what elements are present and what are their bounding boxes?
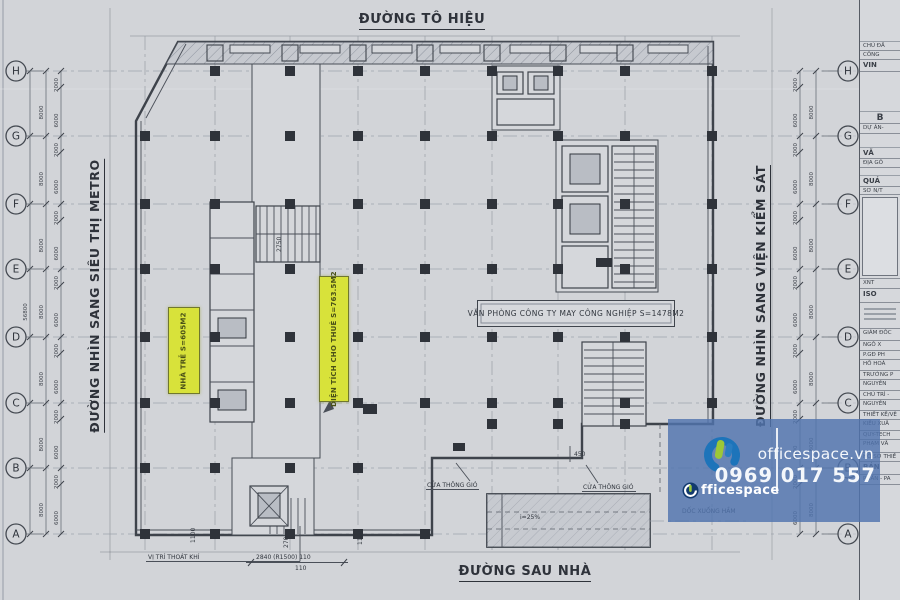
dimension-text: 6000 — [793, 113, 799, 127]
column-marker — [707, 66, 717, 76]
dim-2840: 2840 (R1500) 110 — [256, 554, 311, 561]
column-marker — [140, 529, 150, 539]
column-marker — [140, 264, 150, 274]
dimension-text: 6000 — [54, 445, 60, 459]
column-marker — [420, 529, 430, 539]
dimension-text: 8000 — [809, 238, 815, 252]
dimension-text: 2000 — [793, 78, 799, 92]
column-marker — [210, 264, 220, 274]
grid-bubble-label: A — [844, 529, 852, 541]
column-marker — [420, 131, 430, 141]
grid-bubble-label: E — [13, 264, 20, 276]
title-block-row: TRƯỞNG P — [860, 371, 900, 380]
dimension-text: 2000 — [54, 276, 60, 290]
column-marker — [553, 131, 563, 141]
stair-bottom-left — [232, 458, 314, 535]
grid-bubble-label: C — [12, 398, 19, 410]
dimension-text: 2000 — [54, 143, 60, 157]
title-block-row: NGUYỄN — [860, 380, 900, 391]
column-marker — [620, 131, 630, 141]
chamfer-inner-line — [146, 44, 186, 118]
dimension-text: 8000 — [809, 372, 815, 386]
title-block-row: ĐỊA GỐ — [860, 159, 900, 168]
column-marker — [140, 398, 150, 408]
column-marker — [350, 45, 366, 61]
column-marker — [707, 264, 717, 274]
column-marker — [420, 264, 430, 274]
dimension-text: 8000 — [39, 238, 45, 252]
column-marker — [140, 131, 150, 141]
grid-bubble-label: A — [12, 529, 20, 541]
column-marker — [487, 419, 497, 429]
watermark-brand-text: fficespace — [701, 483, 780, 498]
column-marker — [210, 66, 220, 76]
column-marker — [353, 463, 363, 473]
dimension-text: 6000 — [54, 313, 60, 327]
column-marker — [620, 66, 630, 76]
dimension-text: 2000 — [793, 143, 799, 157]
dimension-text: 8000 — [39, 105, 45, 119]
title-block-row: QUẢ — [860, 176, 900, 187]
column-marker — [420, 332, 430, 342]
dimension-text: 2000 — [793, 344, 799, 358]
title-block-row: CHỦ TRÌ - — [860, 391, 900, 400]
column-marker — [553, 332, 563, 342]
column-marker — [210, 529, 220, 539]
column-marker — [353, 199, 363, 209]
column-marker — [207, 45, 223, 61]
office-area-label-text: VĂN PHÒNG CÔNG TY MAY CÔNG NGHIỆP S=1478… — [468, 309, 685, 318]
dimension-text: 2000 — [793, 211, 799, 225]
column-marker — [285, 332, 295, 342]
highlight-rental-label: DIỆN TÍCH CHO THUÊ S=763.5M2 — [319, 276, 349, 402]
street-label-top-text: ĐƯỜNG TÔ HIỆU — [359, 12, 486, 30]
dim-1100-a: 1100 — [190, 528, 197, 543]
title-block-spacer — [860, 72, 900, 112]
core-right — [556, 140, 658, 292]
column-marker — [285, 398, 295, 408]
watermark-brand: fficespace — [682, 482, 780, 499]
column-marker — [420, 398, 430, 408]
title-block-row: XNT — [860, 279, 900, 289]
column-marker — [282, 45, 298, 61]
column-marker — [487, 332, 497, 342]
column-marker — [353, 264, 363, 274]
title-block-spacer — [860, 168, 900, 176]
column-marker — [285, 199, 295, 209]
column-marker — [353, 66, 363, 76]
title-block-box — [860, 195, 900, 279]
column-marker — [487, 398, 497, 408]
column-marker — [487, 131, 497, 141]
column-marker — [210, 398, 220, 408]
column-marker — [210, 463, 220, 473]
grid-bubble-label: H — [844, 66, 852, 78]
column-marker — [620, 199, 630, 209]
dimension-text: 2000 — [54, 475, 60, 489]
grid-bubble-label: E — [845, 264, 852, 276]
dimension-text: 2000 — [54, 410, 60, 424]
dimension-text: 8000 — [809, 172, 815, 186]
nursery-label-text: NHÀ TRẺ S=605M2 — [180, 312, 188, 389]
core-left — [210, 64, 320, 458]
column-marker — [420, 66, 430, 76]
dimension-text: 8000 — [809, 305, 815, 319]
column-marker — [553, 199, 563, 209]
title-block-row: VĂ — [860, 148, 900, 159]
title-block-row: CÔNG — [860, 51, 900, 60]
dimension-text: 6000 — [793, 380, 799, 394]
column-marker — [553, 398, 563, 408]
column-marker — [553, 66, 563, 76]
dim-2750: 2750 — [276, 237, 283, 252]
column-marker — [210, 199, 220, 209]
column-marker — [553, 419, 563, 429]
dimension-text: 2000 — [54, 344, 60, 358]
column-marker — [487, 199, 497, 209]
grid-bubble-label: H — [12, 66, 20, 78]
title-block-spacer — [860, 0, 900, 42]
column-marker — [353, 332, 363, 342]
column-marker — [353, 131, 363, 141]
dimension-text: 8000 — [39, 503, 45, 517]
street-label-left-text: ĐƯỜNG NHÌN SANG SIÊU THỊ METRO — [87, 159, 105, 433]
office-area-label: VĂN PHÒNG CÔNG TY MAY CÔNG NGHIỆP S=1478… — [477, 300, 675, 327]
dimension-text: 2000 — [54, 78, 60, 92]
column-marker — [140, 463, 150, 473]
column-marker — [140, 199, 150, 209]
watermark-overlay: officespace.vn 0969 017 557 fficespace — [668, 419, 880, 522]
dimension-text: 6000 — [54, 380, 60, 394]
dimension-text: 6000 — [54, 113, 60, 127]
column-marker — [210, 131, 220, 141]
title-block-row: P.GĐ PH — [860, 351, 900, 360]
dim-1100-b: 1100 — [357, 530, 364, 545]
grid-bubble-label: F — [13, 199, 19, 211]
column-marker — [620, 332, 630, 342]
watermark-website: officespace.vn — [758, 445, 874, 463]
column-marker — [420, 199, 430, 209]
title-block-row: DỰ ÁN- — [860, 124, 900, 134]
title-block-row: SƠ N/T — [860, 187, 900, 195]
dimension-text: 6000 — [54, 246, 60, 260]
column-marker — [550, 45, 566, 61]
column-marker — [620, 419, 630, 429]
column-marker — [487, 66, 497, 76]
title-block-row: VIN — [860, 60, 900, 72]
column-marker — [417, 45, 433, 61]
title-block-spacer — [860, 134, 900, 148]
column-marker — [707, 332, 717, 342]
column-marker — [707, 398, 717, 408]
floor-plan-scan: 5680080008000200060002000600080008000200… — [0, 0, 900, 600]
grid-bubble-label: D — [844, 332, 852, 344]
grid-bubble-label: B — [12, 463, 19, 475]
street-label-bottom-text: ĐƯỜNG SAU NHÀ — [459, 564, 592, 582]
street-label-right-text: ĐƯỜNG NHÌN SANG VIỆN KIỂM SÁT — [753, 165, 771, 427]
column-marker — [285, 66, 295, 76]
dimension-text: 8000 — [809, 105, 815, 119]
column-marker — [353, 398, 363, 408]
dimension-text: 6000 — [793, 246, 799, 260]
door-marker — [596, 258, 612, 267]
core-top-middle — [492, 66, 560, 130]
exhaust-label: VỊ TRÍ THOÁT KHÍ — [148, 554, 200, 561]
dim-270: 270 — [283, 536, 290, 548]
title-block-row: NGÔ X — [860, 341, 900, 351]
dim-450: 450 — [574, 451, 586, 458]
column-marker — [285, 463, 295, 473]
dimension-text: 8000 — [39, 372, 45, 386]
vent-label-right: CỬA THÔNG GIÓ — [583, 483, 634, 491]
dimension-text: 8000 — [39, 437, 45, 451]
dimension-text: 2000 — [793, 276, 799, 290]
title-block-contact-lines — [860, 303, 900, 329]
column-marker — [285, 264, 295, 274]
rental-label-text: DIỆN TÍCH CHO THUÊ S=763.5M2 — [330, 271, 338, 407]
dimension-text: 2000 — [54, 211, 60, 225]
column-marker — [487, 264, 497, 274]
title-block-row: HỒ HOÀ — [860, 360, 900, 371]
street-label-bottom: ĐƯỜNG SAU NHÀ — [430, 564, 620, 582]
dimension-text: 56800 — [23, 303, 29, 321]
dimension-text: 6000 — [793, 180, 799, 194]
column-marker — [620, 264, 630, 274]
column-marker — [210, 332, 220, 342]
stair-right-lower — [582, 342, 646, 426]
door-marker — [363, 404, 377, 414]
dimension-text: 6000 — [793, 313, 799, 327]
column-marker — [707, 131, 717, 141]
column-marker — [707, 199, 717, 209]
dimension-text: 8000 — [39, 172, 45, 186]
column-marker — [617, 45, 633, 61]
door-marker — [453, 443, 465, 451]
highlight-nursery-label: NHÀ TRẺ S=605M2 — [168, 307, 200, 394]
ramp-slope-label: i=25% — [520, 514, 540, 521]
title-block-row: NGUYỄN — [860, 400, 900, 411]
column-marker — [285, 131, 295, 141]
title-block-row: GIÁM ĐỐC — [860, 329, 900, 341]
dim-110: 110 — [295, 565, 307, 572]
street-label-top: ĐƯỜNG TÔ HIỆU — [332, 12, 512, 30]
column-marker — [620, 398, 630, 408]
title-block-row: CHỦ ĐẦ — [860, 42, 900, 51]
dimension-text: 6000 — [54, 180, 60, 194]
grid-bubble-label: C — [844, 398, 851, 410]
column-marker — [140, 332, 150, 342]
dimension-text: 6000 — [54, 511, 60, 525]
grid-bubble-label: F — [845, 199, 851, 211]
vent-label-left: CỬA THÔNG GIÓ — [427, 481, 478, 489]
title-block-row: ISO — [860, 289, 900, 303]
column-marker — [553, 264, 563, 274]
grid-bubble-label: D — [12, 332, 20, 344]
grid-bubble-label: G — [12, 131, 20, 143]
grid-bubble-label: G — [844, 131, 852, 143]
column-marker — [484, 45, 500, 61]
officespace-logo-small-icon — [682, 482, 699, 499]
dimension-text: 8000 — [39, 305, 45, 319]
title-block-row: B — [860, 112, 900, 124]
